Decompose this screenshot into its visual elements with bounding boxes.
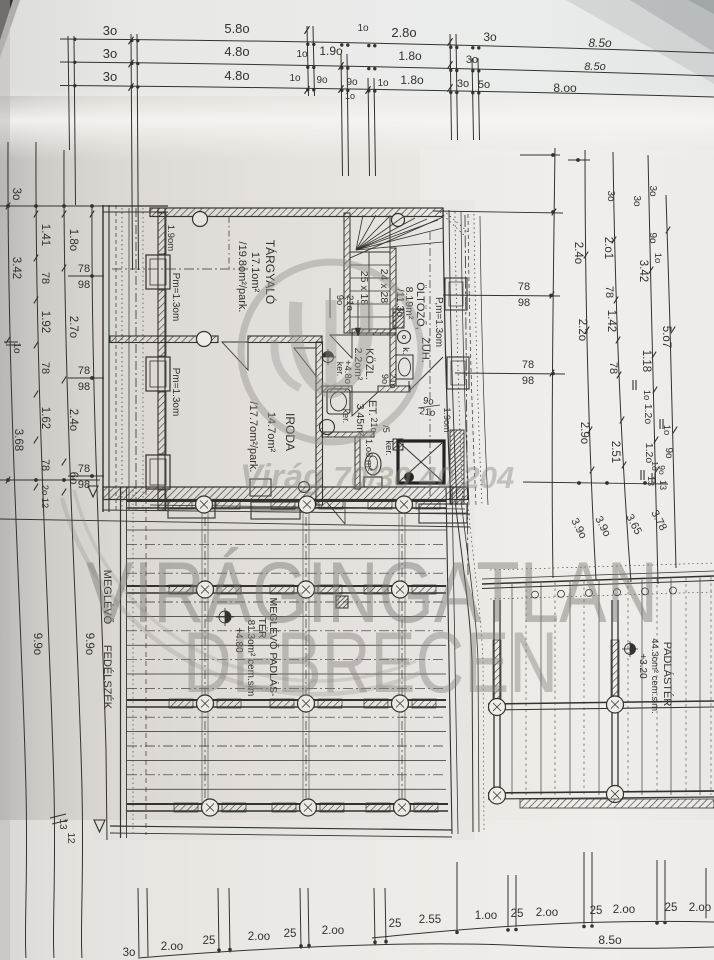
svg-text:2.oo: 2.oo (536, 907, 558, 919)
svg-text:3o: 3o (10, 188, 22, 201)
svg-text:3o: 3o (631, 195, 642, 207)
svg-text:25 x 18: 25 x 18 (358, 271, 370, 306)
svg-text:78: 78 (607, 362, 619, 374)
svg-text:78: 78 (39, 362, 51, 374)
svg-text:1o: 1o (641, 390, 652, 401)
svg-text:1o: 1o (377, 78, 389, 89)
svg-text:2.oo: 2.oo (322, 925, 344, 937)
svg-text:2.51: 2.51 (609, 441, 621, 463)
svg-text:ET.: ET. (366, 400, 378, 416)
svg-text:1o: 1o (652, 253, 663, 264)
svg-text:3o: 3o (647, 185, 658, 197)
svg-text:9o: 9o (663, 447, 674, 459)
svg-text:78: 78 (518, 281, 530, 293)
svg-text:5.8o: 5.8o (224, 21, 249, 36)
svg-text:+3.20: +3.20 (637, 653, 648, 679)
svg-text:98: 98 (518, 297, 530, 309)
svg-text:3.42: 3.42 (10, 257, 22, 279)
svg-text:1.62: 1.62 (39, 407, 51, 429)
svg-text:1o: 1o (289, 73, 301, 84)
svg-text:78: 78 (39, 272, 51, 284)
svg-text:PADLÁSTÉR: PADLÁSTÉR (661, 642, 674, 707)
svg-text:2.2o: 2.2o (576, 319, 588, 341)
svg-text:2.4o: 2.4o (67, 409, 79, 431)
svg-text:25: 25 (590, 905, 603, 917)
svg-text:3o: 3o (457, 78, 469, 90)
svg-text:Pm=1.3om: Pm=1.3om (170, 273, 181, 322)
svg-text:1.9om: 1.9om (165, 225, 176, 251)
svg-text:5.o7: 5.o7 (660, 326, 672, 348)
svg-text:17.1om²: 17.1om² (249, 252, 261, 293)
svg-text:1.8o: 1.8o (400, 73, 424, 87)
svg-text:3.42: 3.42 (637, 260, 649, 282)
svg-text:25: 25 (665, 902, 678, 914)
svg-text:98: 98 (78, 381, 90, 393)
svg-text:1.41: 1.41 (39, 224, 51, 246)
svg-text:Virág 70/30 40 204: Virág 70/30 40 204 (240, 458, 514, 496)
svg-text:1.9om: 1.9om (442, 407, 452, 432)
svg-text:9.9o: 9.9o (31, 633, 43, 655)
svg-text:8.5o: 8.5o (598, 933, 622, 947)
svg-text:25: 25 (389, 918, 402, 930)
svg-text:25: 25 (511, 908, 524, 920)
svg-text:3o: 3o (103, 69, 117, 84)
svg-text:2.oo: 2.oo (161, 941, 183, 953)
svg-text:21o: 21o (388, 373, 398, 388)
svg-text:3o: 3o (103, 23, 117, 38)
svg-text:12: 12 (65, 832, 76, 844)
svg-text:1.8o: 1.8o (67, 229, 79, 251)
svg-text:3o: 3o (483, 30, 497, 44)
svg-text:2.4o: 2.4o (572, 242, 584, 264)
svg-text:2.9o: 2.9o (578, 422, 590, 444)
svg-text:1.42: 1.42 (605, 310, 617, 332)
svg-text:1.2o: 1.2o (642, 404, 654, 425)
svg-text:k.: k. (400, 347, 411, 354)
svg-text:78: 78 (603, 286, 615, 298)
svg-text:2.oo: 2.oo (613, 904, 635, 916)
svg-text:8.5o: 8.5o (584, 61, 605, 73)
svg-text:1.oo: 1.oo (475, 910, 497, 922)
svg-text:ker.: ker. (383, 440, 394, 455)
svg-text:2.oo: 2.oo (248, 931, 270, 943)
svg-text:/19.8om²/park.: /19.8om²/park. (236, 242, 248, 313)
svg-text:78: 78 (39, 459, 51, 471)
svg-text:3o: 3o (466, 54, 478, 66)
svg-text:3o: 3o (123, 947, 136, 959)
svg-text:1o: 1o (357, 23, 369, 34)
svg-text:1.8o: 1.8o (398, 49, 422, 63)
svg-text:2o: 2o (39, 485, 50, 496)
svg-text:1.18: 1.18 (640, 350, 652, 372)
svg-text:4.8o: 4.8o (224, 68, 249, 83)
svg-text:P,m=1.3om: P,m=1.3om (433, 297, 444, 347)
svg-text:5o: 5o (478, 79, 490, 91)
svg-text:2.o1: 2.o1 (602, 237, 614, 259)
svg-text:78: 78 (522, 359, 534, 371)
svg-text:1.92: 1.92 (39, 311, 51, 333)
svg-text:9o: 9o (657, 465, 667, 475)
svg-text:8.5o: 8.5o (588, 36, 612, 50)
svg-text:3o: 3o (103, 46, 117, 61)
svg-text:FEDÉLSZÉK: FEDÉLSZÉK (101, 645, 114, 710)
svg-text:1.9o: 1.9o (319, 44, 343, 58)
svg-text:21o: 21o (419, 406, 436, 419)
svg-text:25: 25 (284, 928, 297, 940)
svg-text:2.oo: 2.oo (689, 902, 711, 914)
svg-text:4.8o: 4.8o (224, 44, 249, 59)
svg-text:9o: 9o (316, 75, 328, 86)
svg-text:9o: 9o (346, 77, 358, 88)
svg-text:3.68: 3.68 (12, 429, 24, 451)
svg-text:8.oo: 8.oo (553, 81, 577, 95)
svg-text:DEBRECEN: DEBRECEN (183, 615, 558, 711)
svg-text:12: 12 (39, 498, 50, 509)
svg-text:98: 98 (78, 279, 90, 291)
svg-text:6o: 6o (67, 472, 79, 485)
svg-text:78: 78 (78, 365, 90, 377)
svg-text:Pm=1.3om: Pm=1.3om (170, 368, 181, 417)
svg-text:98: 98 (522, 375, 534, 387)
svg-text:3o: 3o (605, 190, 616, 202)
svg-text:1o: 1o (345, 91, 355, 101)
svg-text:2.7o: 2.7o (67, 316, 79, 338)
svg-text:44.3om² cem.sim.: 44.3om² cem.sim. (649, 638, 660, 714)
svg-text:13: 13 (658, 480, 668, 490)
svg-text:1o: 1o (296, 49, 308, 60)
svg-text:2.55: 2.55 (419, 914, 441, 926)
svg-text:1o: 1o (11, 342, 22, 354)
svg-text:2.8o: 2.8o (391, 25, 416, 40)
svg-text:9o: 9o (647, 232, 658, 244)
svg-text:25: 25 (203, 935, 216, 947)
svg-text:78: 78 (78, 263, 90, 275)
